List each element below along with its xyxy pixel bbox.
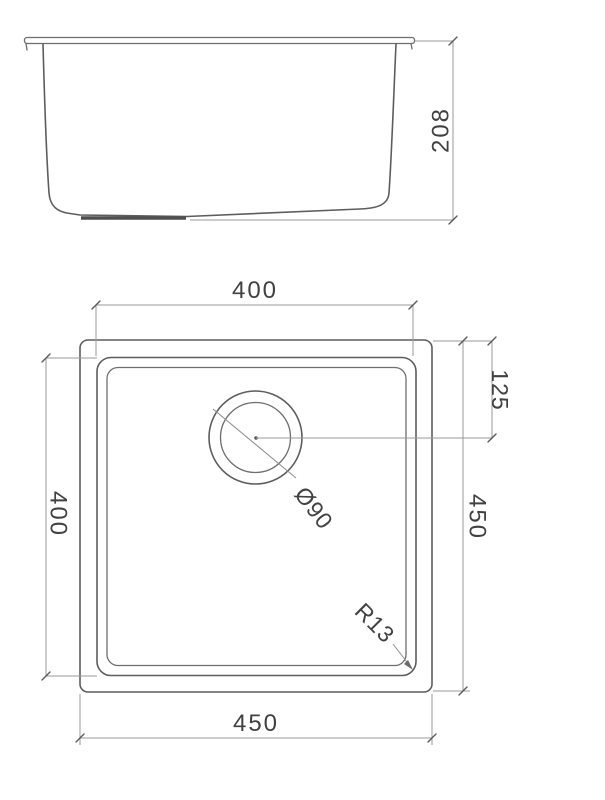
drawing-canvas: 208 Ø90 400 (0, 0, 605, 800)
dim-outer-height: 450 (464, 494, 491, 540)
dim-drain-offset: 125 (487, 369, 513, 410)
sink-body-outline (43, 44, 396, 217)
dim-side-height: 208 (428, 107, 455, 153)
corner-radius-arrowhead (404, 660, 413, 670)
label-corner-radius: R13 (350, 598, 400, 648)
technical-drawing: 208 Ø90 400 (0, 0, 605, 800)
rim-right-lip (411, 44, 412, 50)
dim-bowl-height: 400 (45, 491, 72, 537)
dim-bowl-width: 400 (232, 277, 278, 304)
drain-diameter-leader (213, 409, 296, 478)
plan-view: Ø90 400 400 450 (42, 277, 513, 745)
label-drain-diameter: Ø90 (289, 482, 338, 535)
side-view: 208 (25, 37, 458, 224)
sink-rim (25, 38, 415, 44)
dim-outer-width: 450 (233, 710, 279, 737)
rim-left-lip (26, 44, 27, 51)
